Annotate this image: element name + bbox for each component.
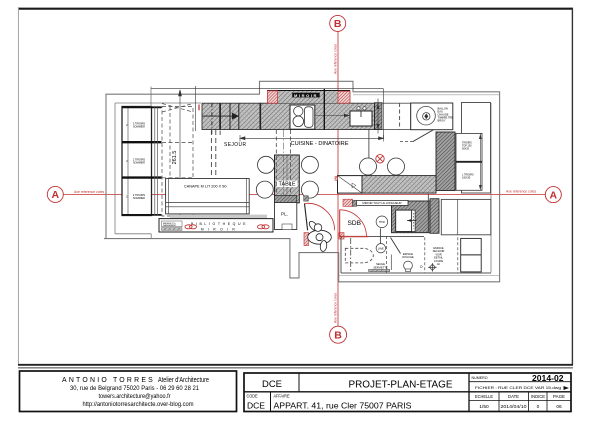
svg-text:ECHELLE: ECHELLE: [475, 394, 493, 399]
svg-text:2014/04/10: 2014/04/10: [501, 404, 527, 410]
svg-text:TABLE: TABLE: [279, 182, 297, 188]
svg-text:0: 0: [537, 404, 540, 410]
svg-text:2014-02: 2014-02: [532, 374, 564, 383]
svg-text:06: 06: [556, 404, 562, 410]
svg-text:SDB: SDB: [348, 220, 362, 227]
svg-text:BIBLIOTHEQUE: BIBLIOTHEQUE: [191, 222, 248, 226]
svg-text:DATE: DATE: [508, 394, 519, 399]
svg-text:A: A: [550, 189, 558, 201]
svg-text:MIROIR: MIROIR: [294, 93, 318, 98]
svg-text:ANTONIO TORRES: ANTONIO TORRES: [62, 375, 155, 384]
svg-text:SEJOUR: SEJOUR: [224, 142, 247, 148]
svg-text:SOMMIER: SOMMIER: [133, 197, 145, 200]
svg-text:kit: kit: [437, 262, 440, 266]
svg-text:MIROIR TOUT LE LONGUEUR: MIROIR TOUT LE LONGUEUR: [362, 201, 401, 205]
svg-text:LAVE: LAVE: [378, 247, 384, 250]
svg-text:Axe reference cotes: Axe reference cotes: [506, 190, 536, 194]
svg-text:SOMMIER: SOMMIER: [133, 162, 145, 165]
svg-text:B: B: [334, 330, 342, 342]
svg-text:30, rue de Belgrand 75020 Pari: 30, rue de Belgrand 75020 Paris - 06 29 …: [70, 386, 200, 392]
svg-text:B: B: [334, 18, 342, 30]
svg-text:DCE: DCE: [262, 379, 282, 389]
svg-text:CANAPE M LIT 200 X 90: CANAPE M LIT 200 X 90: [184, 184, 227, 188]
svg-text:CUISINE - DINATOIRE: CUISINE - DINATOIRE: [291, 141, 349, 147]
svg-text:Axe reference cotes: Axe reference cotes: [334, 44, 338, 74]
svg-text:NUMERO: NUMERO: [472, 375, 488, 380]
svg-text:MIROIR: MIROIR: [201, 228, 239, 232]
svg-text:Atelier d'Architecture: Atelier d'Architecture: [158, 375, 209, 384]
svg-text:PL.: PL.: [281, 212, 288, 217]
svg-text:PAGE: PAGE: [553, 394, 565, 399]
svg-text:SOMMIER: SOMMIER: [133, 126, 145, 129]
svg-text:261.5: 261.5: [172, 151, 178, 165]
svg-text:INDICE: INDICE: [531, 394, 545, 399]
svg-text:TH30: TH30: [379, 221, 386, 224]
svg-text:O: O: [420, 265, 423, 269]
svg-text:http://antoniotorresarchitecte: http://antoniotorresarchitecte.over-blog…: [83, 402, 194, 408]
svg-text:SERVIETTE: SERVIETTE: [373, 265, 388, 269]
svg-text:FICHIER : RUE CLER DCE VAR 15.: FICHIER : RUE CLER DCE VAR 15.dwg: [475, 386, 561, 390]
svg-text:APPART. 41, rue Cler 75007 PAR: APPART. 41, rue Cler 75007 PARIS: [274, 402, 413, 411]
svg-text:PROJET-PLAN-ETAGE: PROJET-PLAN-ETAGE: [349, 380, 453, 391]
svg-text:BROIY: BROIY: [438, 119, 446, 123]
svg-text:Axe reference cotes: Axe reference cotes: [74, 190, 104, 194]
svg-text:1/50: 1/50: [479, 404, 489, 410]
svg-text:DCE: DCE: [247, 402, 266, 411]
svg-text:towers.architecture@yahoo.fr: towers.architecture@yahoo.fr: [99, 394, 171, 400]
svg-text:AFFAIRE: AFFAIRE: [274, 394, 290, 399]
svg-text:A: A: [52, 189, 60, 201]
svg-text:100X35: 100X35: [462, 177, 471, 180]
svg-text:RANGEMENT: RANGEMENT: [163, 224, 177, 227]
svg-text:DOUCHE: DOUCHE: [402, 255, 414, 259]
svg-text:Axe reference cotes: Axe reference cotes: [334, 293, 338, 323]
svg-text:60X35: 60X35: [462, 148, 470, 151]
svg-text:CODE: CODE: [247, 394, 258, 399]
